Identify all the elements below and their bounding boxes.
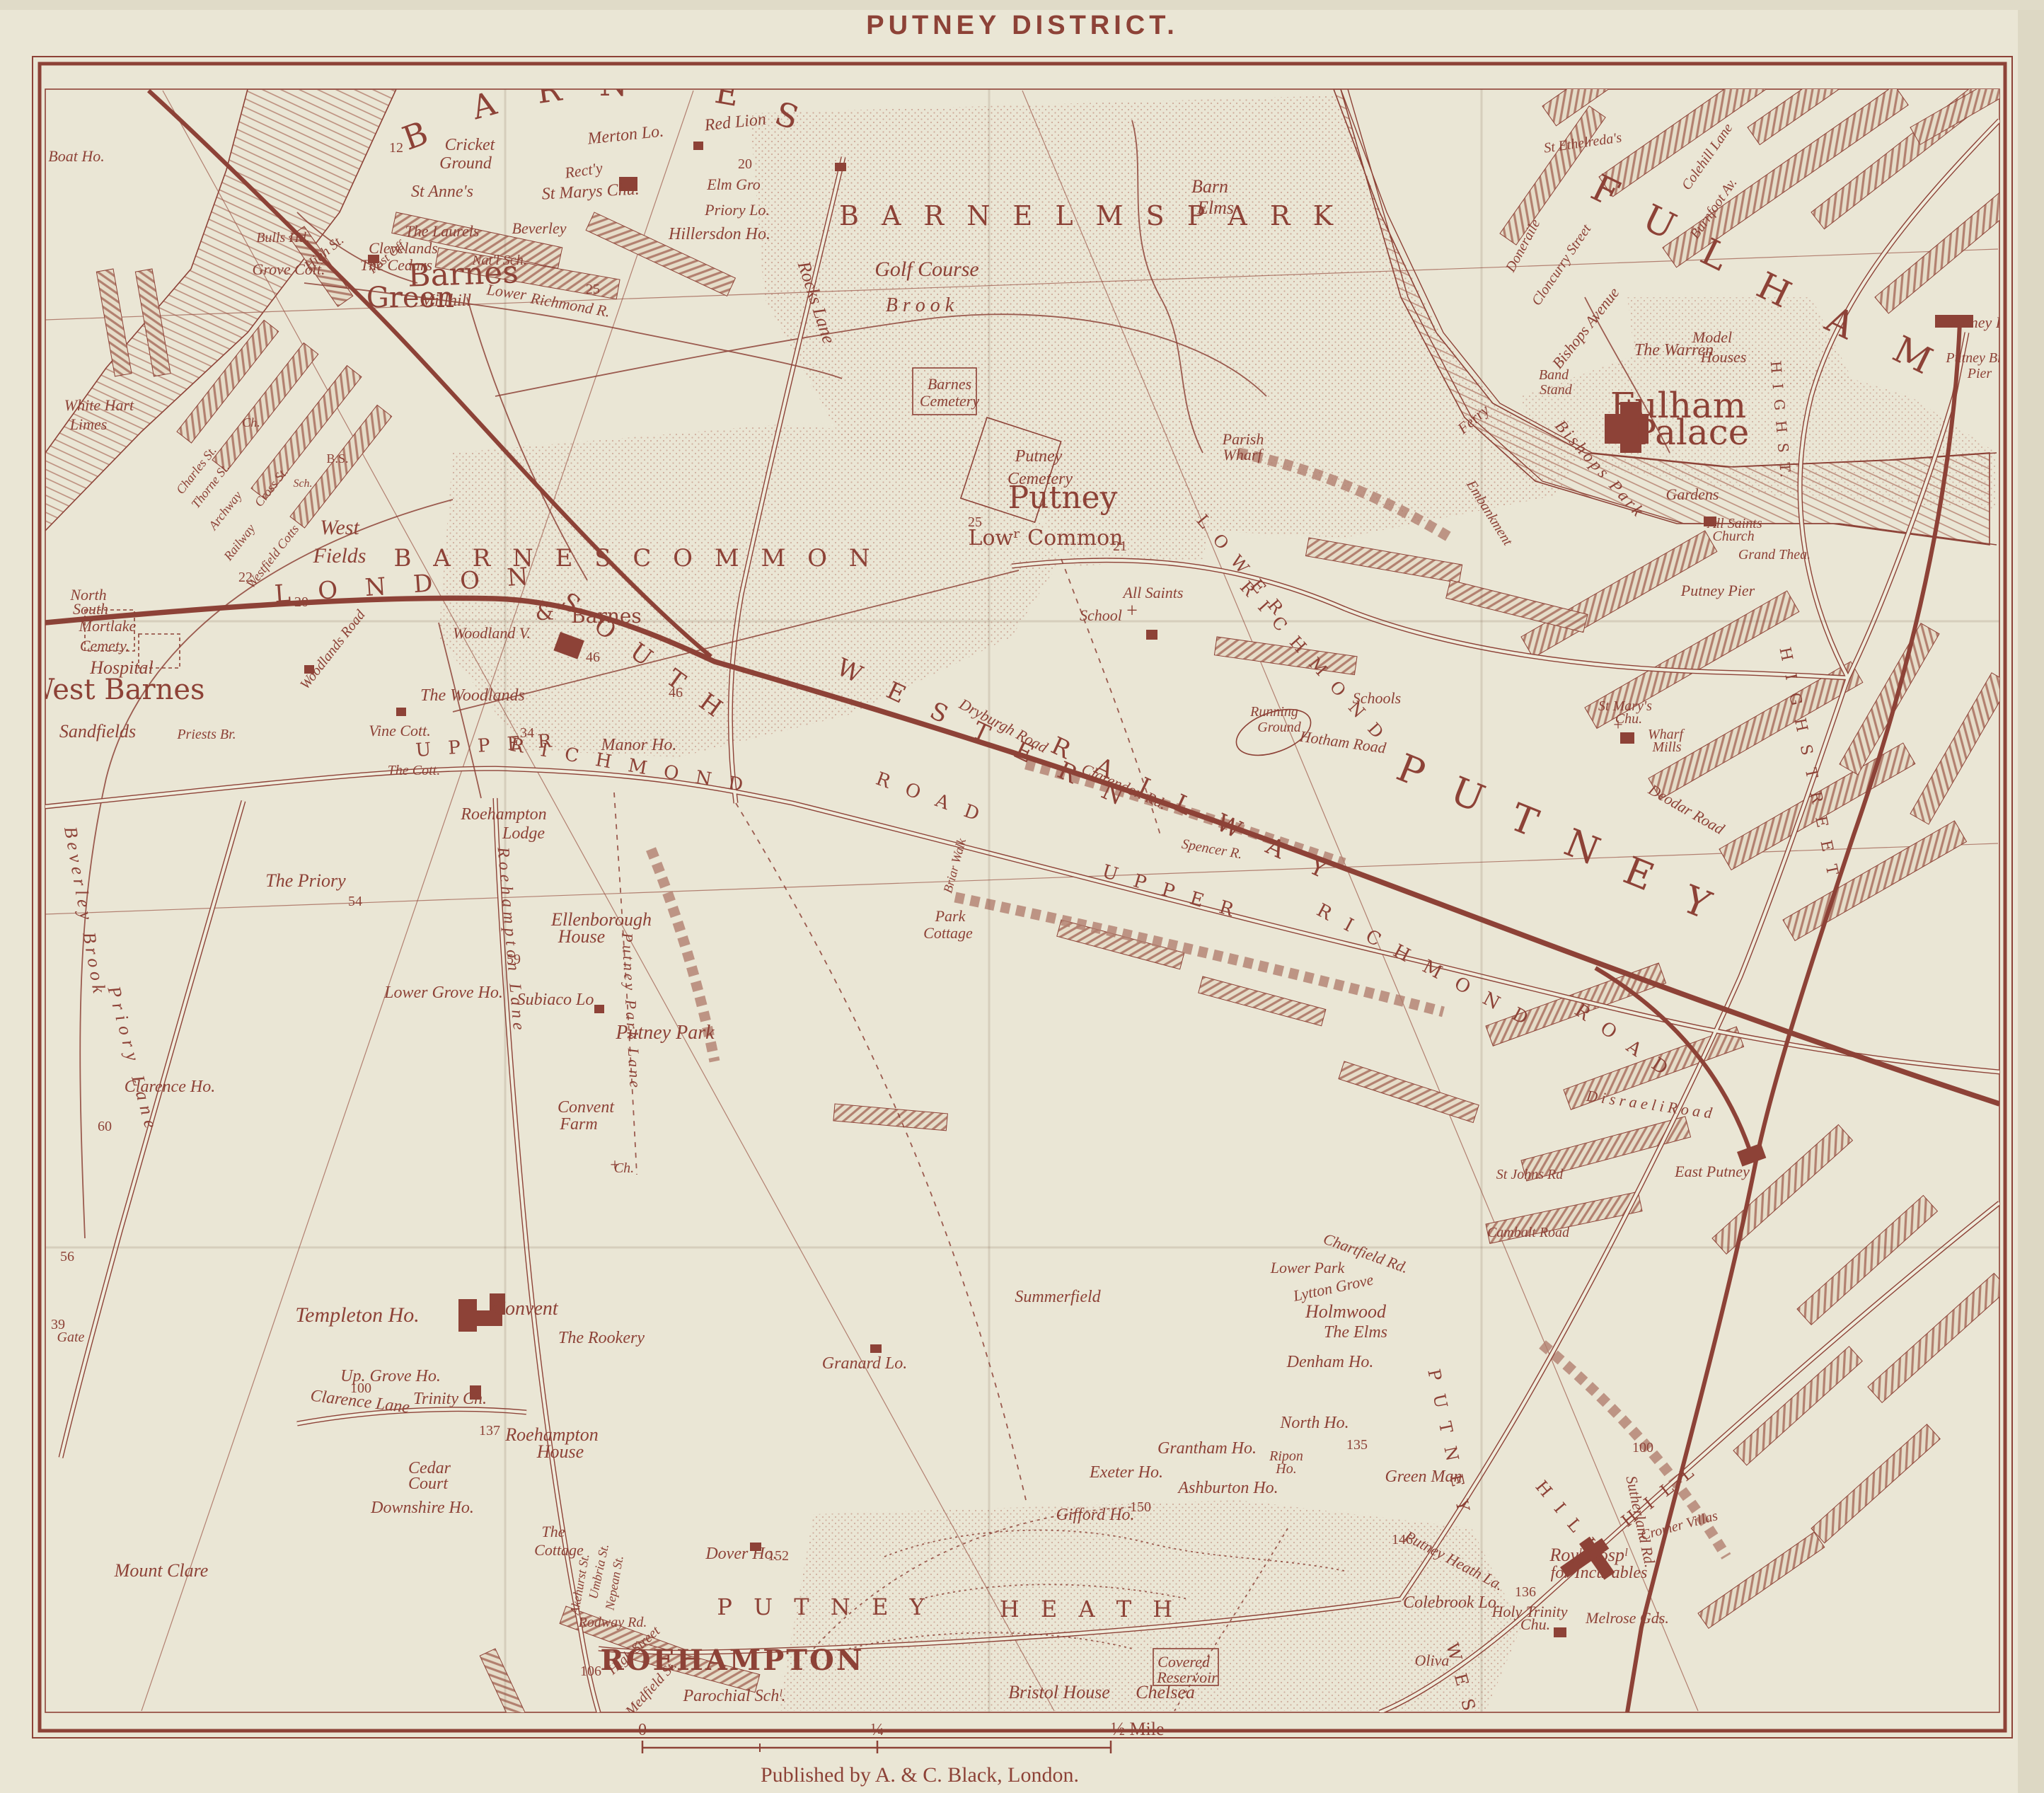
- map-label-bristol-house: Bristol House: [1008, 1682, 1110, 1702]
- map-label-46: 46: [586, 650, 600, 665]
- map-label-sandfields: Sandfields: [59, 721, 136, 742]
- map-label-100: 100: [350, 1380, 371, 1396]
- publisher-imprint: Published by A. & C. Black, London.: [761, 1763, 1079, 1787]
- map-label-roehampton: Roehampton: [460, 805, 546, 824]
- map-label-clevelands: Clevelands: [369, 239, 438, 257]
- map-label-manor-ho: Manor Ho.: [601, 736, 677, 754]
- map-label-schools: Schools: [1353, 689, 1401, 707]
- map-label-barnes: Barnes: [928, 375, 971, 393]
- map-label-summerfield: Summerfield: [1015, 1288, 1101, 1306]
- map-label-21: 21: [1113, 538, 1127, 554]
- map-label-st-anne-s: St Anne's: [411, 183, 473, 201]
- map-label-grantham-ho: Grantham Ho.: [1157, 1439, 1257, 1458]
- map-label-running: Running: [1249, 704, 1298, 720]
- map-label-model: Model: [1692, 328, 1732, 346]
- map-label-west-barnes: West Barnes: [25, 674, 204, 706]
- map-label-court: Court: [408, 1475, 449, 1493]
- map-label-barnes: Barnes: [571, 604, 642, 628]
- map-label-cemetery: Cemetery: [920, 392, 980, 410]
- scale-quarter-label: ¼: [871, 1721, 884, 1739]
- map-label-school: School: [1080, 606, 1122, 624]
- map-label-25: 25: [586, 282, 600, 297]
- map-label-ground: Ground: [439, 154, 492, 173]
- map-label-elm-gro: Elm Gro: [706, 175, 761, 193]
- map-label-146: 146: [1392, 1532, 1413, 1547]
- map-label-convent: Convent: [558, 1098, 615, 1117]
- paper-edge-right: [2018, 0, 2044, 1793]
- map-label-the-elms: The Elms: [1324, 1323, 1387, 1342]
- map-label-putney: Putney: [1015, 447, 1063, 466]
- map-label-cemety: Cemety.: [80, 637, 129, 655]
- map-label-136: 136: [1515, 1584, 1536, 1600]
- map-label-p-u-t-n-e-y: P U T N E Y: [717, 1593, 931, 1620]
- map-label-cottage: Cottage: [923, 924, 973, 942]
- map-label-: +: [1613, 716, 1623, 734]
- map-label-green-man: Green Man: [1385, 1468, 1462, 1486]
- map-label-the-priory: The Priory: [265, 870, 346, 891]
- paper-edge-top: [0, 0, 2044, 10]
- map-label-roy-hosp: Royˡ Hospˡ: [1549, 1545, 1628, 1565]
- map-label-ch: Ch.: [242, 415, 260, 429]
- map-label-mortlake: Mortlake: [79, 617, 137, 635]
- map-label-vine-cott: Vine Cott.: [369, 722, 431, 739]
- map-label-chu: Chu.: [1520, 1615, 1550, 1633]
- map-label-convent: Convent: [492, 1298, 559, 1320]
- map-label-exeter-ho: Exeter Ho.: [1089, 1463, 1163, 1482]
- map-label-parochial-sch: Parochial Schˡ.: [682, 1687, 785, 1705]
- map-label-templeton-ho: Templeton Ho.: [295, 1303, 420, 1327]
- map-label-colebrook-lo: Colebrook Lo.: [1403, 1593, 1501, 1612]
- map-label-150: 150: [1130, 1499, 1151, 1515]
- map-label-roehampton: ROEHAMPTON: [601, 1644, 865, 1677]
- map-label-nat-l-sch: Nat'l Sch.: [471, 253, 527, 268]
- map-label-137: 137: [479, 1423, 500, 1439]
- scale-half-mile-label: ½ Mile: [1111, 1719, 1164, 1739]
- map-label-church: Church: [1712, 529, 1754, 544]
- map-label-b-r-o-o-k: B r o o k: [886, 294, 954, 316]
- map-label-hillersdon-ho: Hillersdon Ho.: [668, 225, 770, 243]
- map-label-h-e-a-t-h: H E A T H: [1000, 1596, 1179, 1622]
- map-label-46: 46: [669, 685, 683, 701]
- map-label-20: 20: [738, 156, 752, 172]
- map-label-grand-thea: Grand Thea.: [1738, 547, 1811, 563]
- map-label-20: 20: [294, 594, 308, 610]
- map-label-60: 60: [98, 1119, 112, 1134]
- map-label-25: 25: [968, 514, 982, 530]
- map-label-holmwood: Holmwood: [1305, 1301, 1387, 1322]
- map-label-59: 59: [507, 952, 521, 967]
- map-label-white-hart: White Hart: [64, 396, 134, 414]
- map-label-22: 22: [238, 570, 253, 585]
- map-label-: +: [610, 1156, 620, 1175]
- map-label-fields: Fields: [313, 544, 366, 567]
- map-label-135: 135: [1346, 1437, 1368, 1453]
- map-label-: +: [1126, 600, 1138, 622]
- map-label-all-saints: All Saints: [1122, 584, 1184, 601]
- map-label-north-ho: North Ho.: [1279, 1414, 1349, 1432]
- map-label-the-cott: The Cott.: [388, 763, 440, 778]
- map-label-56: 56: [60, 1249, 74, 1264]
- scale-zero-label: 0: [638, 1721, 647, 1739]
- map-label-34: 34: [520, 725, 534, 741]
- map-label-west: West: [320, 516, 359, 539]
- map-label-downshire-ho: Downshire Ho.: [370, 1499, 474, 1517]
- map-label-palace: Palace: [1633, 412, 1750, 453]
- page-title: PUTNEY DISTRICT.: [866, 11, 1179, 40]
- map-label-100: 100: [1632, 1440, 1653, 1455]
- map-label-putney-park: Putney Park: [615, 1022, 715, 1044]
- map-label-b-s: B.S.: [326, 451, 348, 466]
- map-label-the-woodlands: The Woodlands: [420, 686, 525, 705]
- map-label-house: House: [536, 1441, 584, 1462]
- map-label-the-laurels: The Laurels: [405, 222, 480, 240]
- map-label-granard-lo: Granard Lo.: [822, 1354, 907, 1373]
- map-label-mills: Mills: [1651, 739, 1681, 755]
- map-label-reservoir: Reservoir: [1156, 1668, 1218, 1686]
- map-label-stand: Stand: [1540, 382, 1573, 398]
- map-label-106: 106: [580, 1664, 601, 1679]
- map-label-for-incurables: for Incurables: [1551, 1564, 1648, 1582]
- map-label-st-johns-rd: St Johns Rd: [1496, 1167, 1564, 1182]
- map-label-grove-cott: Grove Cott.: [252, 260, 325, 278]
- map-label-putney-pier: Putney Pier: [1680, 582, 1755, 599]
- map-label-denham-ho: Denham Ho.: [1286, 1353, 1374, 1371]
- map-label-lower-grove-ho: Lower Grove Ho.: [383, 984, 503, 1002]
- map-label-dover-ho: Dover Ho.: [705, 1545, 777, 1563]
- map-label-cambalt-road: Cambalt Road: [1487, 1225, 1570, 1240]
- map-label-park: Park: [935, 907, 966, 925]
- map-label-gardens: Gardens: [1666, 485, 1719, 503]
- map-label-ho: Ho.: [1275, 1461, 1296, 1477]
- map-label-house: House: [558, 926, 605, 947]
- map-label-millhill: Millhill: [420, 292, 471, 310]
- map-label-limes: Limes: [69, 415, 108, 433]
- map-label-pier: Pier: [1967, 366, 1992, 381]
- map-label-wharf: Wharf: [1223, 446, 1264, 463]
- map-label-ashburton-ho: Ashburton Ho.: [1177, 1479, 1278, 1497]
- map-label-low-common: Lowʳ Common: [969, 526, 1124, 550]
- map-label-mount-clare: Mount Clare: [114, 1560, 209, 1581]
- map-label-the-rookery: The Rookery: [558, 1329, 645, 1347]
- map-label-houses: Houses: [1700, 348, 1747, 366]
- map-label-sch: Sch.: [293, 478, 312, 490]
- map-label-cricket: Cricket: [445, 136, 496, 154]
- map-label-oliva: Oliva: [1415, 1651, 1450, 1669]
- map-label-putney: Putney: [1008, 480, 1118, 516]
- map-label-trinity-ch: Trinity Ch.: [413, 1390, 487, 1408]
- map-label-beverley: Beverley: [512, 219, 567, 237]
- map-label-12: 12: [389, 140, 403, 156]
- map-label-b-a-r-n-e-l-m-s-p-a-r-k: B A R N E L M S P A R K: [839, 200, 1340, 231]
- map-label-putney-br: Putney Br.: [1945, 350, 2004, 366]
- map-label-priory-lo: Priory Lo.: [704, 201, 770, 219]
- map-label-rodway-rd: Rodway Rd.: [578, 1615, 647, 1630]
- map-label-woodland-v: Woodland V.: [453, 624, 531, 642]
- map-label-the-cedars: The Cedars: [360, 256, 432, 274]
- map-label-priests-br: Priests Br.: [176, 727, 236, 742]
- map-label-39: 39: [51, 1317, 65, 1332]
- map-label-152: 152: [768, 1548, 789, 1564]
- map-label-farm: Farm: [559, 1115, 597, 1134]
- map-label-54: 54: [348, 894, 362, 909]
- map-label-elms: Elms: [1196, 197, 1234, 218]
- map-label-south: South: [73, 600, 108, 618]
- map-label-barn: Barn: [1191, 176, 1228, 197]
- map-label-subiaco-lo: Subiaco Lo: [517, 991, 594, 1009]
- map-label-lodge: Lodge: [502, 824, 545, 843]
- map-label-gifford-ho: Gifford Ho.: [1056, 1506, 1134, 1524]
- map-label-boat-ho: Boat Ho.: [48, 147, 104, 165]
- map-label-the: The: [542, 1523, 565, 1540]
- map-label-clarence-ho: Clarence Ho.: [125, 1078, 215, 1096]
- map-label-melrose-gds: Melrose Gds.: [1585, 1609, 1669, 1627]
- map-label-bulls-hd: Bulls Hd.: [256, 230, 310, 246]
- map-label-golf-course: Golf Course: [874, 258, 979, 281]
- map-label-cottage: Cottage: [534, 1541, 584, 1559]
- map-label-band: Band: [1539, 367, 1569, 383]
- map-label-east-putney: East Putney: [1674, 1163, 1750, 1180]
- map-label-ground: Ground: [1257, 720, 1301, 735]
- map-sheet: PUTNEY DISTRICT.: [0, 0, 2044, 1793]
- map-label-lower-park: Lower Park: [1270, 1259, 1346, 1276]
